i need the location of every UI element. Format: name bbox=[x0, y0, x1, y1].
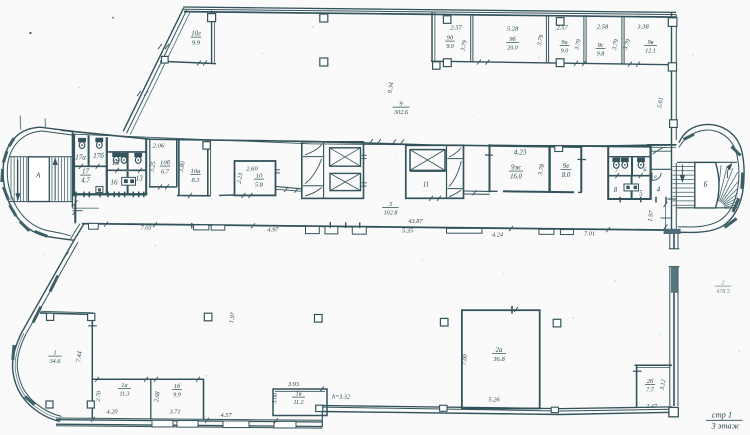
svg-text:15: 15 bbox=[112, 159, 120, 167]
svg-text:2б: 2б bbox=[647, 378, 654, 385]
svg-text:3.38: 3.38 bbox=[636, 24, 649, 31]
svg-text:10а: 10а bbox=[191, 168, 202, 175]
svg-text:13: 13 bbox=[136, 175, 144, 183]
svg-text:а: а bbox=[654, 174, 657, 180]
svg-text:9е: 9е bbox=[563, 162, 570, 170]
svg-text:11.3: 11.3 bbox=[119, 391, 129, 397]
svg-text:5: 5 bbox=[639, 191, 643, 198]
svg-text:36.8: 36.8 bbox=[492, 356, 505, 363]
svg-text:2.57: 2.57 bbox=[450, 25, 462, 32]
svg-text:4.57: 4.57 bbox=[220, 412, 232, 419]
svg-text:4.7: 4.7 bbox=[81, 178, 90, 185]
svg-text:102.8: 102.8 bbox=[384, 211, 398, 217]
svg-text:2.47: 2.47 bbox=[646, 403, 658, 410]
svg-text:9.8: 9.8 bbox=[597, 51, 605, 57]
svg-text:4: 4 bbox=[657, 187, 661, 194]
svg-text:7.7: 7.7 bbox=[646, 387, 655, 394]
svg-text:3.93: 3.93 bbox=[287, 381, 299, 388]
svg-text:9.0: 9.0 bbox=[561, 48, 569, 54]
svg-text:9д: 9д bbox=[447, 35, 453, 42]
svg-text:2а: 2а bbox=[496, 347, 503, 354]
svg-text:20.0: 20.0 bbox=[507, 45, 518, 51]
svg-text:Б: Б bbox=[702, 181, 708, 189]
svg-text:2.57: 2.57 bbox=[556, 25, 568, 32]
svg-text:5.35: 5.35 bbox=[402, 228, 413, 235]
svg-text:478.5: 478.5 bbox=[716, 288, 730, 295]
svg-text:17а: 17а bbox=[75, 154, 86, 162]
svg-text:17: 17 bbox=[82, 168, 90, 176]
svg-text:8.3: 8.3 bbox=[192, 177, 200, 184]
svg-text:34.6: 34.6 bbox=[49, 358, 62, 365]
svg-text:17б: 17б bbox=[93, 152, 104, 160]
svg-text:6.7: 6.7 bbox=[161, 168, 170, 175]
svg-text:5.28: 5.28 bbox=[507, 26, 519, 33]
svg-text:8.0: 8.0 bbox=[562, 172, 571, 179]
svg-text:7.01: 7.01 bbox=[584, 231, 595, 238]
svg-text:1в: 1в bbox=[296, 391, 302, 398]
svg-text:9в: 9в bbox=[648, 39, 654, 46]
svg-text:10: 10 bbox=[256, 173, 263, 180]
svg-text:4.23: 4.23 bbox=[514, 148, 527, 156]
svg-text:43.87: 43.87 bbox=[408, 218, 423, 225]
svg-text:302.6: 302.6 bbox=[393, 109, 409, 116]
svg-text:4.97: 4.97 bbox=[267, 227, 279, 234]
svg-text:h=3.32: h=3.32 bbox=[332, 395, 350, 401]
svg-text:11.2: 11.2 bbox=[293, 400, 303, 406]
svg-text:10б: 10б bbox=[160, 160, 171, 167]
svg-text:А: А bbox=[35, 172, 41, 180]
svg-text:7.03: 7.03 bbox=[140, 225, 151, 232]
svg-text:9ж: 9ж bbox=[511, 164, 522, 172]
svg-text:2.60: 2.60 bbox=[246, 166, 258, 173]
svg-text:11: 11 bbox=[423, 182, 429, 189]
svg-text:1: 1 bbox=[53, 350, 56, 357]
svg-text:16: 16 bbox=[110, 179, 118, 187]
svg-text:7.44: 7.44 bbox=[75, 351, 83, 363]
svg-text:9б: 9б bbox=[509, 36, 516, 43]
svg-text:9.9: 9.9 bbox=[173, 392, 181, 398]
svg-text:9а: 9а bbox=[561, 39, 567, 46]
svg-text:9.0: 9.0 bbox=[446, 44, 454, 50]
svg-text:12.1: 12.1 bbox=[645, 48, 656, 54]
svg-text:стр 1: стр 1 bbox=[712, 410, 732, 419]
svg-text:3 этаж: 3 этаж bbox=[711, 421, 740, 430]
svg-text:9с: 9с bbox=[598, 42, 604, 49]
svg-text:2.06: 2.06 bbox=[153, 143, 165, 150]
svg-text:16.0: 16.0 bbox=[510, 174, 522, 181]
svg-text:1а: 1а bbox=[121, 382, 127, 389]
svg-text:10г: 10г bbox=[191, 31, 201, 38]
svg-text:4.20: 4.20 bbox=[106, 409, 118, 416]
svg-text:1б: 1б bbox=[174, 383, 181, 390]
svg-text:4.24: 4.24 bbox=[492, 232, 503, 239]
svg-text:8: 8 bbox=[614, 187, 618, 194]
svg-text:3: 3 bbox=[388, 201, 392, 208]
svg-text:3.71: 3.71 bbox=[169, 409, 181, 416]
svg-text:2.58: 2.58 bbox=[597, 24, 609, 31]
svg-text:5.8: 5.8 bbox=[255, 181, 264, 188]
svg-text:5.26: 5.26 bbox=[488, 397, 500, 404]
svg-text:9.9: 9.9 bbox=[192, 40, 201, 47]
svg-text:7.00: 7.00 bbox=[461, 353, 469, 365]
